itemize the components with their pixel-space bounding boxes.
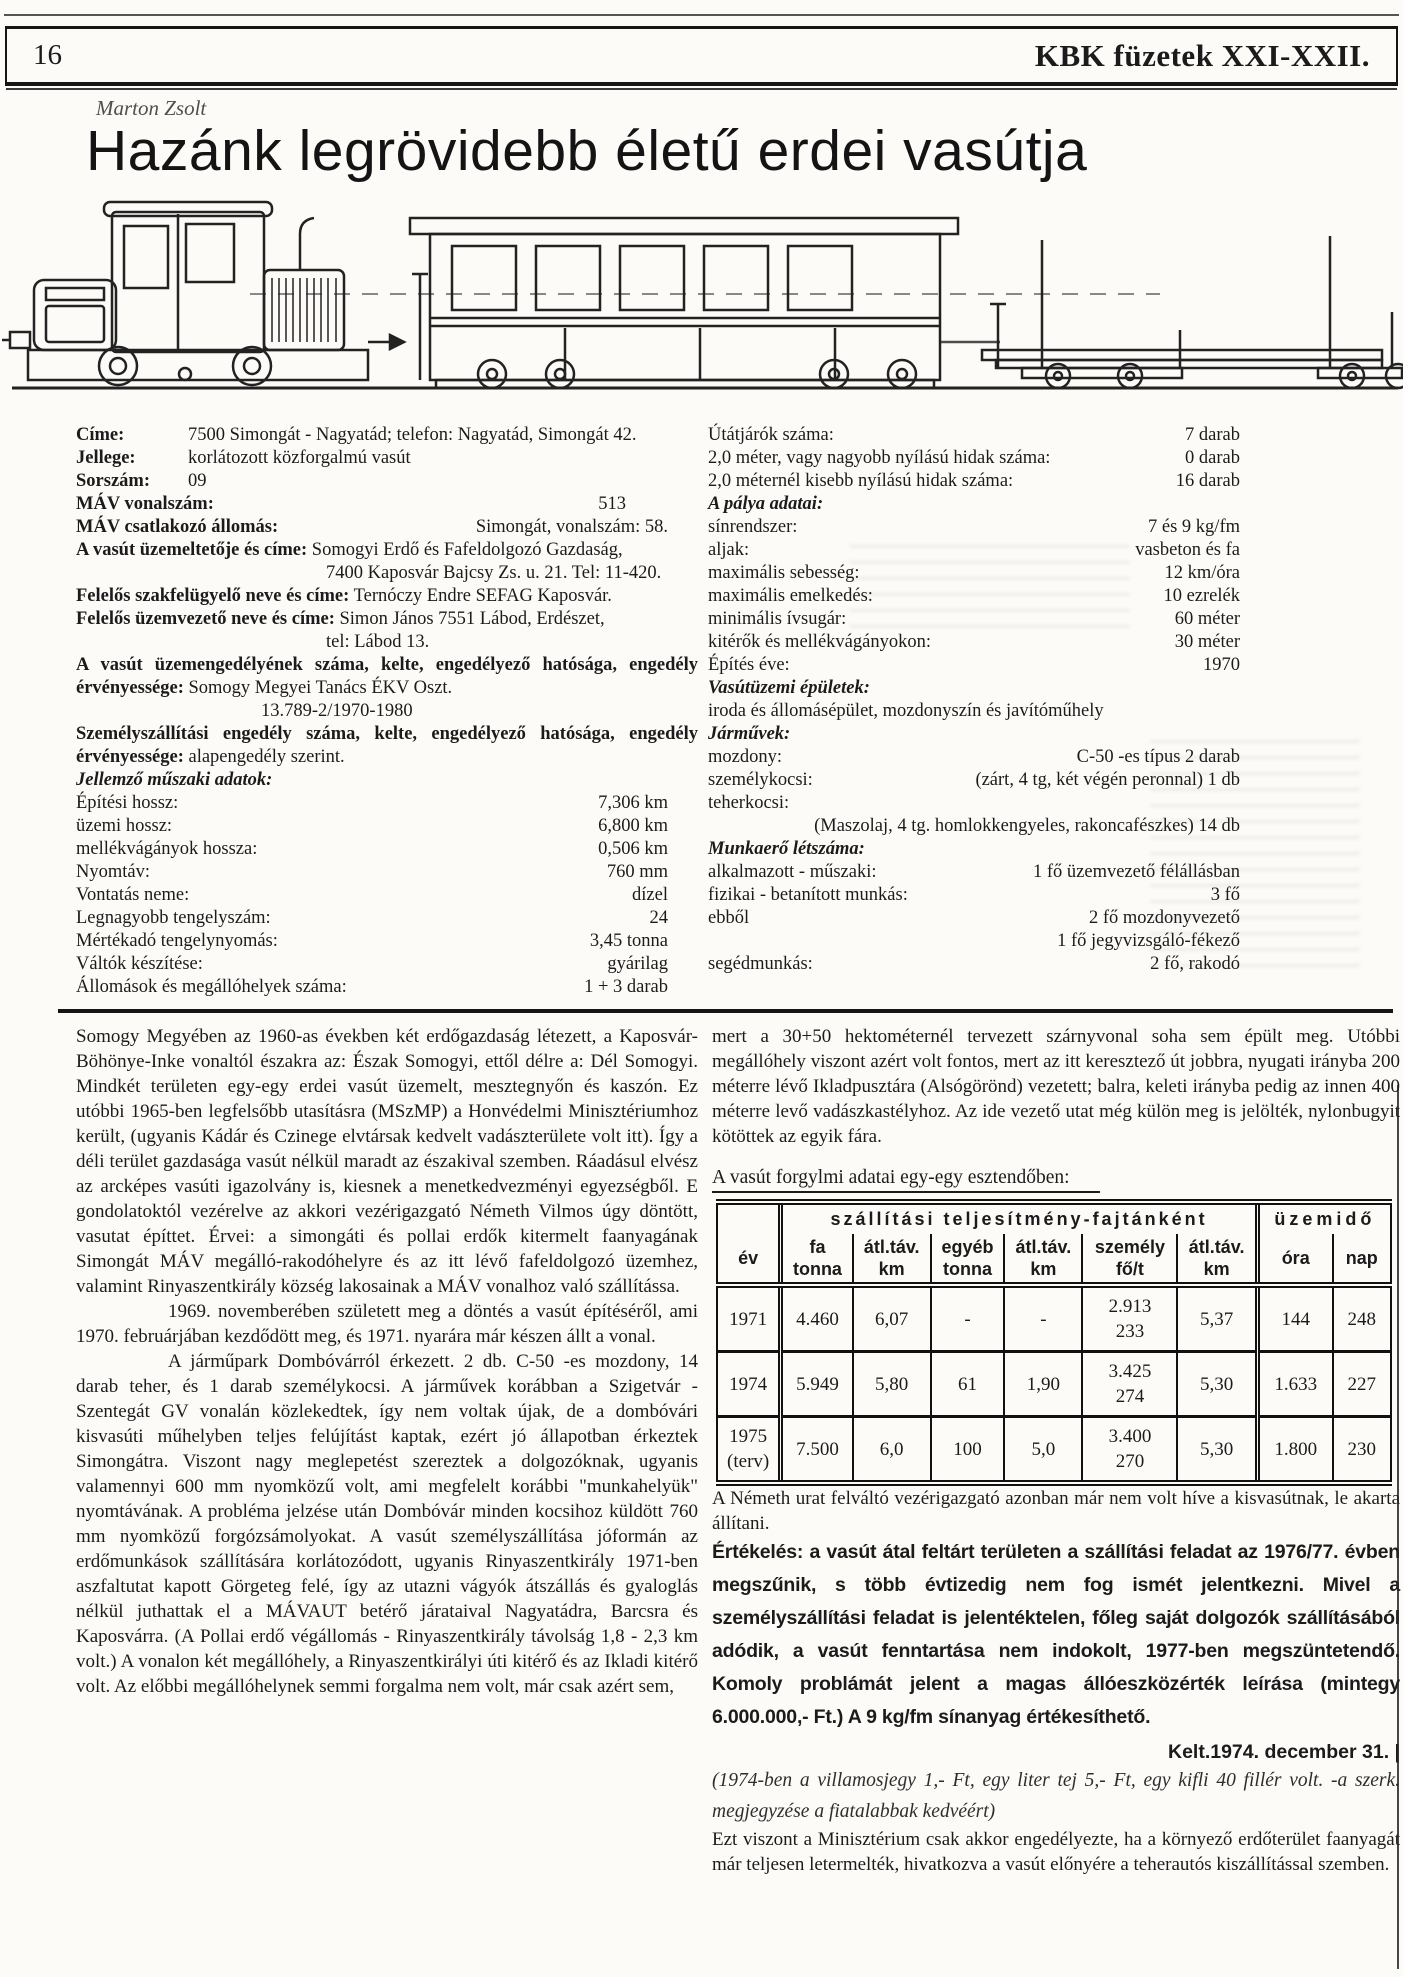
col-header: óra xyxy=(1257,1234,1332,1285)
paragraph: Ezt viszont a Minisztérium csak akkor en… xyxy=(712,1827,1400,1877)
table-caption: A vasút forgylmi adatai egy-egy esztendő… xyxy=(712,1165,1100,1193)
paragraph: 1969. novemberében született meg a dönté… xyxy=(76,1299,698,1349)
track-data-heading: A pálya adatai: xyxy=(708,493,1398,516)
fact-row: Jellege:korlátozott közforgalmú vasút xyxy=(76,447,698,470)
log-wagons-drawing xyxy=(940,236,1403,388)
scan-edge-line xyxy=(1397,1085,1399,1969)
tech-data-heading: Jellemző műszaki adatok: xyxy=(76,769,698,792)
train-drawing xyxy=(0,182,1403,412)
staff-row: ebből2 fő mozdonyvezető xyxy=(708,907,1240,930)
article-title: Hazánk legrövidebb életű erdei vasútja xyxy=(86,118,1286,184)
table-row: 1975 (terv) 7.500 6,0 100 5,0 3.400 270 … xyxy=(717,1417,1391,1484)
tech-row: Váltók készítése:gyárilag xyxy=(76,953,668,976)
article-body: Somogy Megyében az 1960-as években két e… xyxy=(76,1024,1397,1877)
fact-continuation: 13.789-2/1970-1980 xyxy=(76,700,698,723)
top-rule xyxy=(4,14,1399,16)
col-header: fa tonna xyxy=(781,1234,853,1285)
vehicle-row: személykocsi:(zárt, 4 tg, két végén pero… xyxy=(708,769,1240,792)
staff-row: fizikai - betanított munkás:3 fő xyxy=(708,884,1240,907)
staff-row: 1 fő jegyvizsgáló-fékező xyxy=(708,930,1240,953)
passenger-car-drawing xyxy=(410,218,958,388)
vehicles-heading: Járművek: xyxy=(708,723,1398,746)
fact-continuation: 7400 Kaposvár Bajcsy Zs. u. 21. Tel: 11-… xyxy=(76,562,698,585)
paragraph: A járműpark Dombóvárról érkezett. 2 db. … xyxy=(76,1349,698,1699)
track-row: aljak:vasbeton és fa xyxy=(708,539,1240,562)
table-row: 1974 5.949 5,80 61 1,90 3.425 274 5,30 1… xyxy=(717,1352,1391,1417)
tech-row: Nyomtáv:760 mm xyxy=(76,861,668,884)
col-header: egyéb tonna xyxy=(931,1234,1005,1285)
table-column-header-row: év fa tonna átl.táv. km egyéb tonna átl.… xyxy=(717,1234,1391,1285)
page-header-band: 16 KBK füzetek XXI-XXII. xyxy=(5,26,1398,86)
paragraph: A Németh urat felváltó vezérigazgató azo… xyxy=(712,1486,1400,1536)
track-row: maximális sebesség:12 km/óra xyxy=(708,562,1240,585)
col-header: átl.táv. km xyxy=(1004,1234,1082,1285)
group-header-transport: szállítási teljesítmény-fajtánként xyxy=(781,1202,1258,1234)
data-sheet-right: Útátjárók száma:7 darab 2,0 méter, vagy … xyxy=(708,424,1398,999)
vehicle-row: teherkocsi: xyxy=(708,792,1240,815)
fact-row: 2,0 méter, vagy nagyobb nyílású hidak sz… xyxy=(708,447,1240,470)
tech-row: mellékvágányok hossza:0,506 km xyxy=(76,838,668,861)
fact-row: Felelős üzemvezető neve és címe: Simon J… xyxy=(76,608,698,631)
col-header: személy fő/t xyxy=(1082,1234,1177,1285)
fact-row: Címe:7500 Simongát - Nagyatád; telefon: … xyxy=(76,424,698,447)
fact-continuation: tel: Lábod 13. xyxy=(76,631,698,654)
col-header: átl.táv. km xyxy=(1177,1234,1257,1285)
staff-row: alkalmazott - műszaki:1 fő üzemvezető fé… xyxy=(708,861,1240,884)
col-header: nap xyxy=(1333,1234,1391,1285)
tech-row: Vontatás neme:dízel xyxy=(76,884,668,907)
page-number: 16 xyxy=(33,39,62,72)
col-header: átl.táv. km xyxy=(853,1234,931,1285)
staff-row: segédmunkás:2 fő, rakodó xyxy=(708,953,1240,976)
tech-row: Legnagyobb tengelyszám:24 xyxy=(76,907,668,930)
issue-title: KBK füzetek XXI-XXII. xyxy=(1035,38,1370,74)
buildings-value: iroda és állomásépület, mozdonyszín és j… xyxy=(708,700,1398,723)
track-row: sínrendszer:7 és 9 kg/fm xyxy=(708,516,1240,539)
track-row: kitérők és mellékvágányokon:30 méter xyxy=(708,631,1240,654)
fact-row: MÁV csatlakozó állomás:Simongát, vonalsz… xyxy=(76,516,698,539)
paragraph: Somogy Megyében az 1960-as években két e… xyxy=(76,1024,698,1299)
fact-row: A vasút üzemeltetője és címe: Somogyi Er… xyxy=(76,539,698,562)
tech-row: Állomások és megállóhelyek száma:1 + 3 d… xyxy=(76,976,668,999)
body-column-right: mert a 30+50 hektométernél tervezett szá… xyxy=(712,1024,1400,1877)
locomotive-drawing xyxy=(2,202,404,385)
fact-row: Személyszállítási engedély száma, kelte,… xyxy=(76,723,698,769)
evaluation-block: Értékelés: a vasút átal feltárt területe… xyxy=(712,1536,1400,1734)
vehicle-row: mozdony:C-50 -es típus 2 darab xyxy=(708,746,1240,769)
fact-row: Útátjárók száma:7 darab xyxy=(708,424,1240,447)
traffic-data-table: szállítási teljesítmény-fajtánként üzemi… xyxy=(716,1199,1392,1486)
table-row: 1971 4.460 6,07 - - 2.913 233 5,37 144 2… xyxy=(717,1285,1391,1352)
body-column-left: Somogy Megyében az 1960-as években két e… xyxy=(76,1024,698,1877)
col-header: év xyxy=(717,1234,781,1285)
tech-row: Építési hossz:7,306 km xyxy=(76,792,668,815)
fact-row: Sorszám:09 xyxy=(76,470,698,493)
section-divider xyxy=(58,1009,1393,1013)
track-row: maximális emelkedés:10 ezrelék xyxy=(708,585,1240,608)
fact-row: MÁV vonalszám:513 xyxy=(76,493,698,516)
vehicle-row: (Maszolaj, 4 tg. homlokkengyeles, rakonc… xyxy=(708,815,1240,838)
staff-heading: Munkaerő létszáma: xyxy=(708,838,1398,861)
tech-row: Mértékadó tengelynyomás:3,45 tonna xyxy=(76,930,668,953)
tech-row: üzemi hossz:6,800 km xyxy=(76,815,668,838)
group-header-uptime: üzemidő xyxy=(1257,1202,1391,1234)
table-group-header-row: szállítási teljesítmény-fajtánként üzemi… xyxy=(717,1202,1391,1234)
track-row: Építés éve:1970 xyxy=(708,654,1240,677)
data-sheet-left: Címe:7500 Simongát - Nagyatád; telefon: … xyxy=(76,424,698,999)
track-row: minimális ívsugár:60 méter xyxy=(708,608,1240,631)
editors-note: (1974-ben a villamosjegy 1,- Ft, egy lit… xyxy=(712,1765,1400,1827)
fact-row: Felelős szakfelügyelő neve és címe: Tern… xyxy=(76,585,698,608)
fact-row: A vasút üzemengedélyének száma, kelte, e… xyxy=(76,654,698,700)
dateline: Kelt.1974. december 31. | xyxy=(712,1740,1400,1765)
buildings-heading: Vasútüzemi épületek: xyxy=(708,677,1398,700)
scanned-page: 16 KBK füzetek XXI-XXII. Marton Zsolt Ha… xyxy=(0,0,1403,1977)
paragraph: mert a 30+50 hektométernél tervezett szá… xyxy=(712,1024,1400,1149)
fact-row: 2,0 méternél kisebb nyílású hidak száma:… xyxy=(708,470,1240,493)
data-sheet: Címe:7500 Simongát - Nagyatád; telefon: … xyxy=(76,424,1395,999)
